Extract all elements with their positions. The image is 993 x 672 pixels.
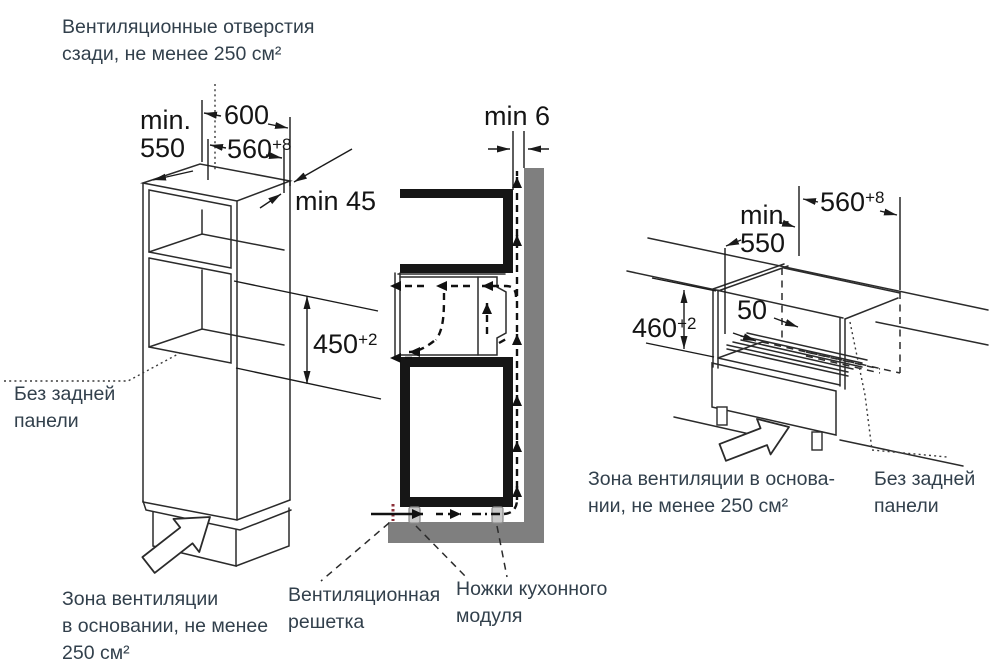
dim-560-right: 560+8 <box>820 184 884 216</box>
dim-min550-left: min. 550 <box>140 106 191 162</box>
lower-cabinet-bottom <box>400 497 513 507</box>
installation-diagram-page: Вентиляционные отверстия сзади, не менее… <box>0 0 993 672</box>
note-base-vent-left: Зона вентиляции в основании, не менее 25… <box>62 586 268 667</box>
dim-50: 50 <box>737 296 767 324</box>
no-back-left-leader <box>4 353 180 381</box>
upper-cabinet-bottom <box>400 264 513 273</box>
lower-cabinet-top <box>400 357 513 367</box>
note-vent-rear: Вентиляционные отверстия сзади, не менее… <box>62 14 314 68</box>
dim-450: 450+2 <box>313 326 377 358</box>
dim-min45: min 45 <box>295 187 376 215</box>
dim-460: 460+2 <box>632 310 696 342</box>
dim-min6: min 6 <box>484 102 550 130</box>
upper-cabinet-top <box>400 189 513 198</box>
note-grille: Вентиляционная решетка <box>288 582 440 636</box>
vent-arrow-left <box>136 500 223 581</box>
vent-arrow-right <box>716 409 796 470</box>
upper-cabinet-back <box>503 189 513 273</box>
dim-600: 600 <box>224 101 269 129</box>
dim-min550-right: min. 550 <box>740 201 791 257</box>
base-leg-1 <box>717 407 727 425</box>
base-leg-2 <box>812 432 822 450</box>
dim-560-left: 560+8 <box>227 131 291 163</box>
wall <box>524 168 544 543</box>
note-no-back-left: Без задней панели <box>14 381 115 435</box>
note-no-back-right: Без задней панели <box>874 466 975 520</box>
note-base-vent-right: Зона вентиляции в основа- нии, не менее … <box>588 466 835 520</box>
lower-cabinet-back <box>503 357 513 507</box>
floor <box>388 522 544 543</box>
no-back-right-leader <box>850 322 947 457</box>
note-module-feet: Ножки кухонного модуля <box>456 576 607 630</box>
lower-cabinet-front <box>400 357 410 507</box>
grille-leader <box>321 523 389 581</box>
